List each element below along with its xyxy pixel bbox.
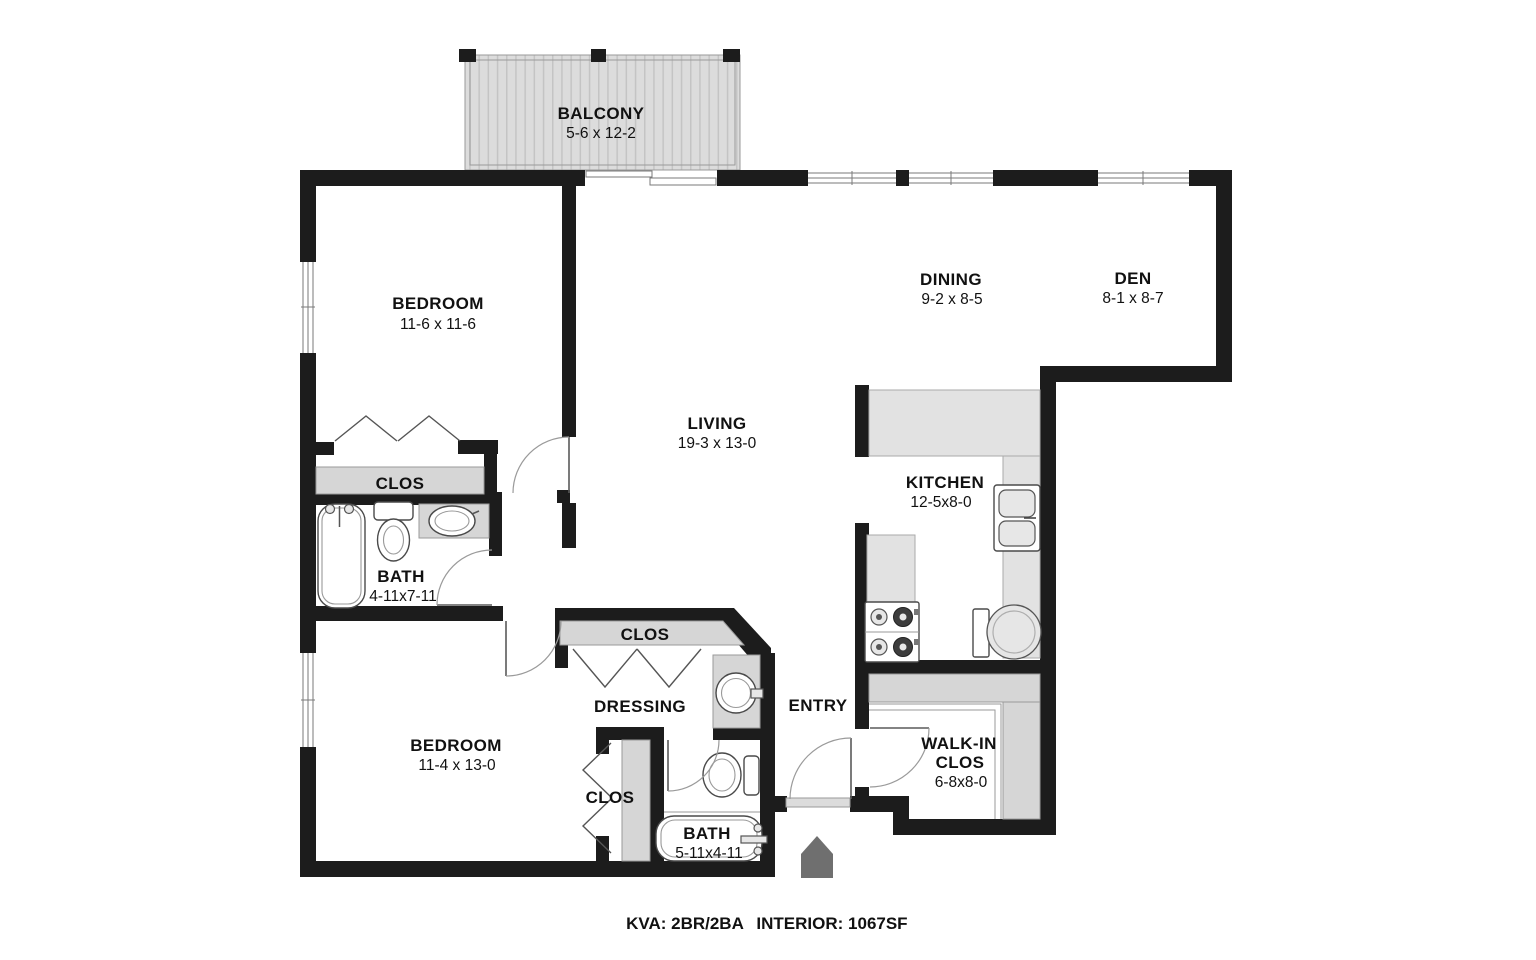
wall-den-step xyxy=(1040,366,1232,382)
window-top-2 xyxy=(909,170,993,186)
entry-label: ENTRY xyxy=(789,696,848,715)
living-dims: 19-3 x 13-0 xyxy=(678,435,757,452)
walkin-shelf-right xyxy=(1003,702,1040,819)
closet2-label: CLOS xyxy=(621,625,670,644)
kitchen-dims: 12-5x8-0 xyxy=(910,494,972,511)
wall-walkin-bottom xyxy=(893,819,1056,835)
wall-bedroom1-south-block xyxy=(458,440,498,454)
wall-kitchen-west-top xyxy=(855,385,869,457)
wall-top-mid3 xyxy=(993,170,1098,186)
walkin-label-line1: WALK-IN xyxy=(921,734,997,753)
toilet-1 xyxy=(374,502,413,561)
bathtub-1 xyxy=(318,504,365,608)
bedroom2-dims: 11-4 x 13-0 xyxy=(418,757,496,774)
wall-closet3-stub-top xyxy=(596,727,609,754)
kitchen-cart xyxy=(973,605,1041,659)
den-label: DEN xyxy=(1114,269,1151,288)
closet1-label: CLOS xyxy=(376,474,425,493)
wall-den-east xyxy=(1216,170,1232,382)
kitchen-counter-left xyxy=(867,535,915,605)
bedroom2-door xyxy=(506,621,561,676)
balcony-dims: 5-6 x 12-2 xyxy=(566,125,636,142)
closet2-bifold-doors xyxy=(573,649,701,687)
wall-bedroom1-east-stub xyxy=(557,490,570,503)
bedroom2-label: BEDROOM xyxy=(410,736,502,755)
bath2-dims: 5-11x4-11 xyxy=(675,845,743,862)
wall-left-top xyxy=(300,170,316,262)
closet1-bifold-doors xyxy=(335,416,460,441)
window-top-1 xyxy=(808,170,896,186)
bedroom1-label: BEDROOM xyxy=(392,294,484,313)
window-left-1 xyxy=(300,262,316,353)
dining-label: DINING xyxy=(920,270,982,289)
stove xyxy=(865,602,919,662)
bath1-door xyxy=(437,550,492,605)
walkin-door xyxy=(870,728,929,787)
wall-top-left xyxy=(300,170,585,186)
entry-threshold xyxy=(786,798,850,807)
wall-bath1-east xyxy=(489,492,502,556)
dressing-label: DRESSING xyxy=(594,697,686,716)
toilet-2 xyxy=(703,753,759,797)
walkin-shelf-top xyxy=(869,674,1040,702)
den-dims: 8-1 x 8-7 xyxy=(1102,290,1163,307)
kitchen-counter-top xyxy=(869,390,1040,456)
window-top-3 xyxy=(1098,170,1189,186)
wall-top-mid1 xyxy=(717,170,808,186)
wall-closet1-jamb xyxy=(484,452,497,494)
bath1-label: BATH xyxy=(377,567,425,586)
footer-interior-area: INTERIOR: 1067SF xyxy=(756,914,907,933)
balcony-post-right xyxy=(723,49,740,62)
wall-bath1-south xyxy=(300,606,503,621)
entry-arrow-marker xyxy=(801,836,833,878)
balcony-label: BALCONY xyxy=(558,104,645,123)
floorplan-page: BALCONY 5-6 x 12-2 BEDROOM 11-6 x 11-6 D… xyxy=(0,0,1536,960)
bath2-label: BATH xyxy=(683,824,731,843)
entry-door xyxy=(790,738,851,799)
bedroom1-door xyxy=(513,437,569,493)
balcony-post-left xyxy=(459,49,476,62)
kitchen-label: KITCHEN xyxy=(906,473,984,492)
living-label: LIVING xyxy=(687,414,746,433)
wall-niche-bottom xyxy=(713,728,762,740)
floorplan-svg: BALCONY 5-6 x 12-2 BEDROOM 11-6 x 11-6 D… xyxy=(0,0,1536,960)
wall-bottom xyxy=(300,861,775,877)
sliding-door-balcony xyxy=(586,171,716,185)
wall-closet2-top xyxy=(557,608,719,621)
wall-left-bottom xyxy=(300,747,316,877)
footer-unit-type: KVA: 2BR/2BA xyxy=(626,914,744,933)
wall-hall-east xyxy=(562,503,576,548)
walkin-label-line2: CLOS xyxy=(936,753,985,772)
wall-walkin-west-top xyxy=(855,674,869,729)
wall-kitchen-east xyxy=(1040,366,1056,835)
bath1-dims: 4-11x7-11 xyxy=(369,588,437,605)
wall-bedroom1-south-stub xyxy=(316,442,334,455)
window-left-2 xyxy=(300,653,316,747)
dining-dims: 9-2 x 8-5 xyxy=(921,291,982,308)
balcony-post-mid xyxy=(591,49,606,62)
wall-bedroom1-east xyxy=(562,186,576,437)
walkin-dims: 6-8x8-0 xyxy=(935,774,988,791)
closet3-label: CLOS xyxy=(586,788,635,807)
wall-walkin-west-bottom xyxy=(855,787,869,812)
wall-top-mid2 xyxy=(896,170,909,186)
kitchen-sink xyxy=(994,485,1040,551)
bedroom1-dims: 11-6 x 11-6 xyxy=(400,316,476,333)
